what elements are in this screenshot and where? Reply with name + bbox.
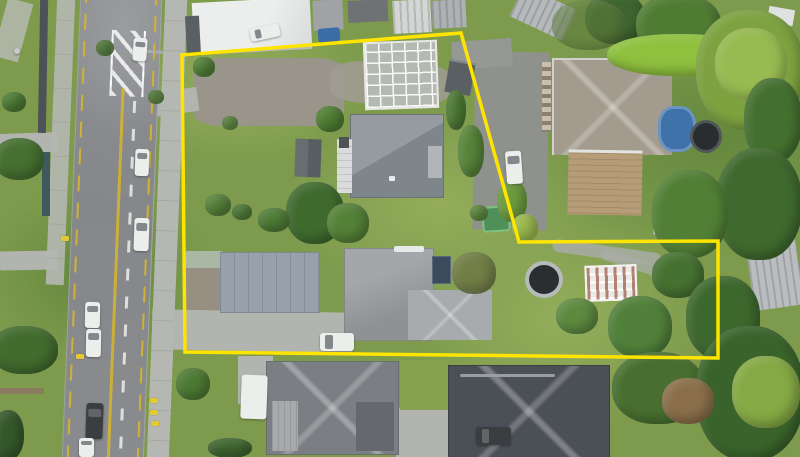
yellow-kerb-marker (150, 398, 158, 403)
yellow-kerb-marker (76, 354, 84, 359)
kerb-marker-layer (0, 0, 800, 457)
aerial-photo (0, 0, 800, 457)
yellow-kerb-marker (150, 410, 158, 415)
yellow-kerb-marker (61, 236, 69, 241)
yellow-kerb-marker (151, 421, 159, 426)
